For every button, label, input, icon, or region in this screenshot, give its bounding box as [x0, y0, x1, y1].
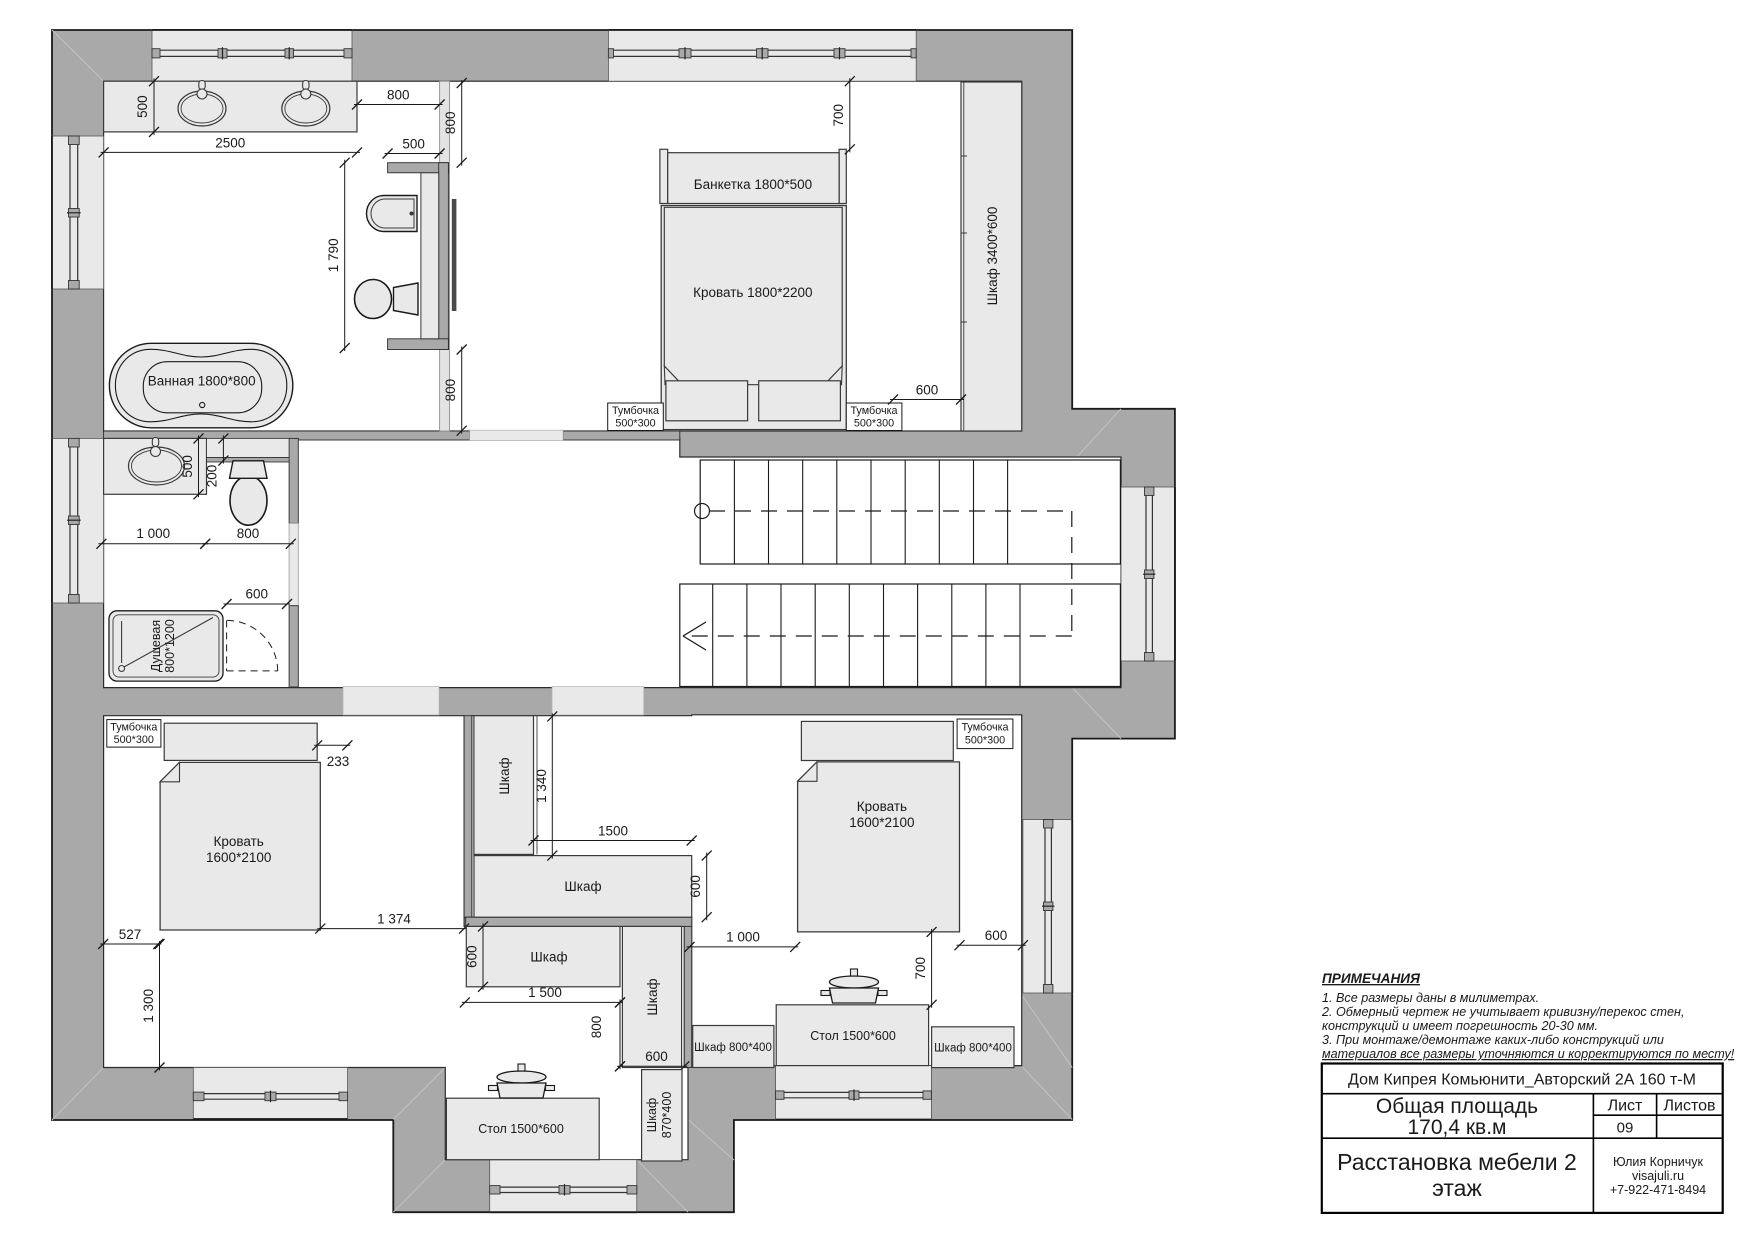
svg-text:Банкетка 1800*500: Банкетка 1800*500 [694, 177, 812, 192]
svg-text:Стол 1500*600: Стол 1500*600 [478, 1122, 564, 1136]
svg-text:Общая площадь: Общая площадь [1376, 1095, 1538, 1118]
svg-text:3. При монтаже/демонтаже каких: 3. При монтаже/демонтаже каких-либо конс… [1322, 1033, 1664, 1047]
svg-text:600: 600 [985, 928, 1008, 943]
svg-text:Шкаф: Шкаф [564, 879, 601, 894]
svg-text:800*1200: 800*1200 [163, 619, 177, 673]
svg-text:этаж: этаж [1432, 1175, 1482, 1201]
svg-text:Кровать: Кровать [857, 799, 907, 814]
svg-text:527: 527 [119, 927, 142, 942]
svg-text:500: 500 [180, 455, 195, 478]
svg-text:800: 800 [589, 1016, 604, 1039]
svg-text:2500: 2500 [215, 136, 245, 151]
svg-text:Кровать 1800*2200: Кровать 1800*2200 [693, 285, 812, 300]
svg-text:Ванная 1800*800: Ванная 1800*800 [148, 374, 256, 389]
svg-text:2. Обмерный чертеж не учитывае: 2. Обмерный чертеж не учитывает кривизну… [1321, 1005, 1684, 1019]
svg-text:800: 800 [443, 379, 458, 402]
svg-text:1 000: 1 000 [726, 930, 760, 945]
svg-text:233: 233 [327, 754, 350, 769]
svg-text:1 500: 1 500 [528, 985, 562, 1000]
svg-text:Шкаф 3400*600: Шкаф 3400*600 [985, 207, 1000, 306]
svg-text:Лист: Лист [1608, 1098, 1643, 1115]
svg-text:09: 09 [1617, 1120, 1634, 1137]
svg-text:Шкаф 800*400: Шкаф 800*400 [934, 1043, 1012, 1055]
svg-text:500*300: 500*300 [615, 418, 655, 430]
svg-text:ПРИМЕЧАНИЯ: ПРИМЕЧАНИЯ [1322, 971, 1421, 986]
svg-text:800: 800 [387, 88, 410, 103]
svg-text:800: 800 [237, 526, 260, 541]
svg-text:800: 800 [443, 112, 458, 135]
svg-text:600: 600 [916, 383, 939, 398]
svg-text:1. Все размеры даны в милиметр: 1. Все размеры даны в милиметрах. [1322, 991, 1539, 1005]
svg-text:Тумбочка: Тумбочка [850, 405, 897, 417]
svg-text:600: 600 [645, 1049, 668, 1064]
svg-text:visajuli.ru: visajuli.ru [1632, 1169, 1684, 1183]
svg-text:Шкаф: Шкаф [530, 950, 567, 965]
svg-text:1 300: 1 300 [141, 989, 156, 1023]
svg-text:Тумбочка: Тумбочка [612, 405, 659, 417]
svg-text:1 000: 1 000 [136, 526, 170, 541]
svg-text:1500: 1500 [598, 824, 628, 839]
svg-text:500: 500 [402, 137, 425, 152]
svg-text:600: 600 [688, 875, 703, 898]
svg-text:170,4 кв.м: 170,4 кв.м [1407, 1116, 1506, 1139]
svg-text:1 340: 1 340 [534, 769, 549, 803]
svg-text:Тумбочка: Тумбочка [961, 722, 1008, 734]
svg-text:Шкаф: Шкаф [497, 757, 512, 794]
svg-text:600: 600 [465, 945, 480, 968]
svg-text:600: 600 [246, 587, 269, 602]
svg-text:700: 700 [913, 957, 928, 980]
svg-text:материалов все размеры уточняю: материалов все размеры уточняются и корр… [1322, 1047, 1735, 1061]
svg-text:Листов: Листов [1664, 1098, 1716, 1115]
svg-text:конструкций и имеет погрешност: конструкций и имеет погрешность 20-30 мм… [1322, 1019, 1598, 1033]
svg-text:Шкаф: Шкаф [645, 1098, 659, 1132]
svg-text:Тумбочка: Тумбочка [110, 722, 157, 734]
svg-text:Шкаф: Шкаф [645, 978, 660, 1015]
svg-text:Душевая: Душевая [149, 620, 163, 672]
svg-text:500*300: 500*300 [965, 735, 1005, 747]
svg-text:Юлия Корничук: Юлия Корничук [1613, 1155, 1703, 1169]
svg-text:500*300: 500*300 [114, 734, 154, 746]
svg-text:700: 700 [831, 104, 846, 127]
svg-text:Стол 1500*600: Стол 1500*600 [810, 1029, 896, 1043]
svg-text:870*400: 870*400 [660, 1092, 674, 1139]
svg-text:1600*2100: 1600*2100 [206, 850, 271, 865]
svg-text:1 374: 1 374 [377, 912, 411, 927]
svg-text:200: 200 [205, 465, 220, 488]
svg-text:+7-922-471-8494: +7-922-471-8494 [1610, 1183, 1706, 1197]
svg-text:Шкаф 800*400: Шкаф 800*400 [694, 1042, 772, 1054]
svg-text:Расстановка мебели 2: Расстановка мебели 2 [1337, 1149, 1577, 1175]
svg-text:Дом Кипрея Комьюнити_Авторский: Дом Кипрея Комьюнити_Авторский 2А 160 т-… [1348, 1072, 1696, 1089]
svg-text:500*300: 500*300 [854, 418, 894, 430]
svg-text:1600*2100: 1600*2100 [849, 815, 914, 830]
svg-text:1 790: 1 790 [326, 238, 341, 272]
svg-text:500: 500 [135, 95, 150, 118]
svg-text:Кровать: Кровать [214, 834, 264, 849]
